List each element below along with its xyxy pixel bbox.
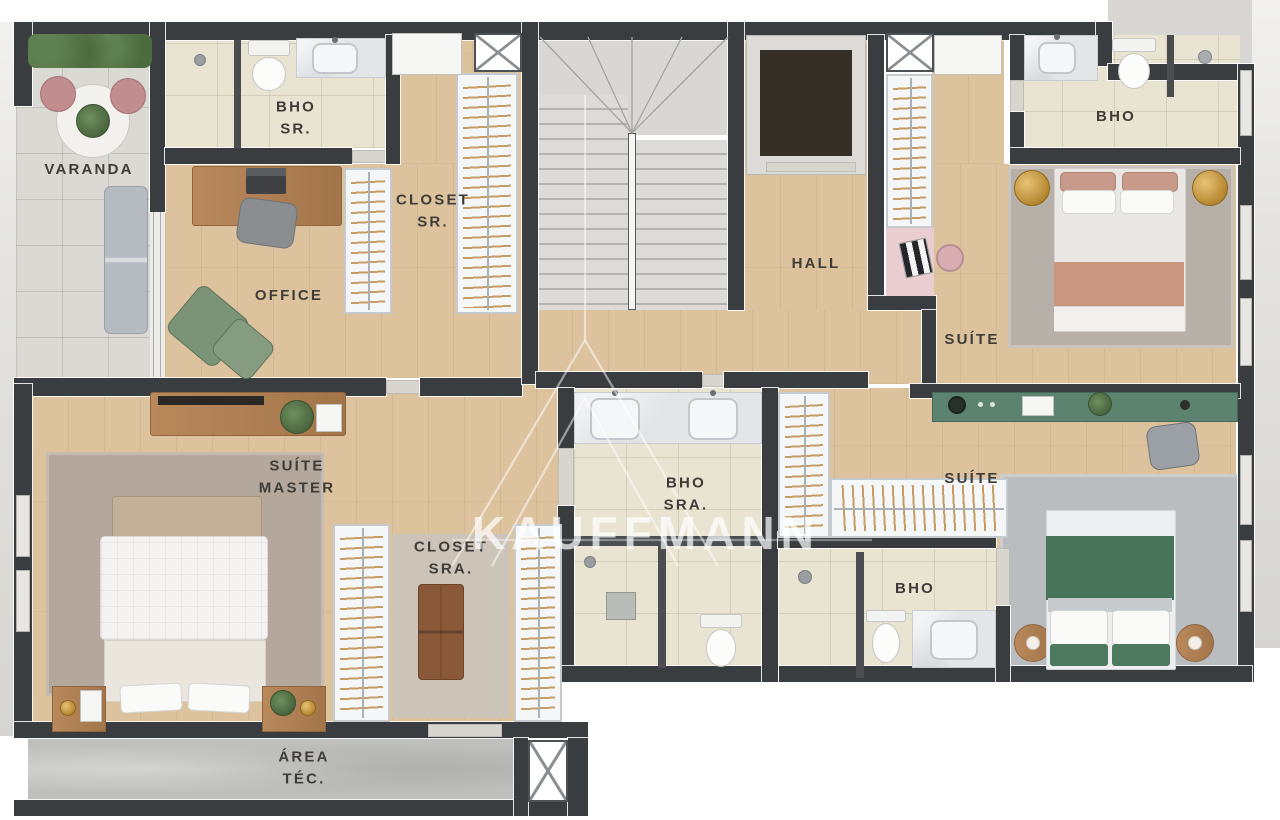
- elevator-shaft-dark: [760, 50, 852, 156]
- shower-head-icon: [584, 556, 596, 568]
- toilet: [248, 40, 290, 56]
- door-bho-sra-top: [702, 374, 724, 387]
- speaker: [80, 690, 102, 722]
- nightstand-plant: [270, 690, 296, 716]
- toilet-bowl: [872, 623, 900, 663]
- pillow: [187, 682, 250, 713]
- varanda-glass-door: [150, 212, 165, 380]
- varanda-chair: [110, 78, 146, 114]
- window: [1240, 455, 1252, 525]
- linen-cabinet: [934, 35, 1002, 75]
- pillow-green-edge: [1112, 644, 1170, 666]
- ventilation-shaft-x-icon: [474, 33, 522, 72]
- wall: [996, 606, 1010, 682]
- closet-rack: [344, 168, 392, 314]
- shower-head-icon: [1198, 50, 1212, 64]
- shower-head-icon: [798, 570, 812, 584]
- pillow: [1112, 610, 1170, 646]
- wall: [868, 296, 936, 310]
- bed-foot: [1054, 306, 1184, 331]
- table-plant: [76, 104, 110, 138]
- toilet-bowl: [252, 57, 286, 91]
- wall: [514, 738, 528, 816]
- bho-bottom-partition: [856, 552, 864, 678]
- stairs-flight-right: [636, 140, 730, 310]
- nightstand-lamp: [1026, 636, 1040, 650]
- bedside-table: [1192, 170, 1228, 206]
- toilet: [1112, 38, 1156, 52]
- window: [16, 495, 30, 557]
- pillow: [1060, 172, 1116, 192]
- lamp: [300, 700, 316, 716]
- sink: [312, 43, 358, 74]
- toilet-bowl: [1118, 53, 1150, 89]
- varanda-chair: [40, 76, 76, 112]
- elevator-door-sill: [766, 162, 856, 172]
- bho-top-partition: [1167, 35, 1174, 97]
- console-knob: [978, 402, 983, 407]
- nightstand-lamp: [1188, 636, 1202, 650]
- sink: [930, 620, 978, 660]
- closet-ottoman: [418, 584, 464, 680]
- faucet: [1054, 34, 1060, 40]
- sink: [688, 398, 738, 440]
- bed-master-duvet: [100, 536, 268, 640]
- office-chair: [235, 196, 299, 250]
- console-tray: [1022, 396, 1054, 416]
- faucet: [332, 37, 338, 43]
- wall: [868, 35, 884, 298]
- wall: [1096, 22, 1112, 66]
- window: [1240, 205, 1252, 280]
- wall: [558, 388, 574, 448]
- closet-rack: [886, 74, 933, 228]
- green-console: [932, 392, 1238, 422]
- bho-sra-partition-v: [658, 546, 666, 668]
- faucet: [612, 390, 618, 396]
- wall: [14, 800, 588, 816]
- wall: [568, 738, 588, 816]
- window: [1240, 298, 1252, 366]
- console-knob: [990, 402, 995, 407]
- closet-cabinet: [392, 33, 462, 75]
- door-bho-bottom: [996, 548, 1010, 606]
- stairs-flight-left: [538, 95, 628, 310]
- varanda-sofa: [104, 186, 148, 334]
- exterior-strip-right: [1252, 0, 1280, 648]
- toilet: [866, 610, 906, 622]
- closet-rack: [830, 478, 1008, 538]
- wall: [150, 22, 165, 212]
- sink: [590, 398, 640, 440]
- ventilation-shaft-x-icon: [886, 33, 934, 72]
- pillow: [1122, 172, 1178, 192]
- wall: [558, 666, 778, 682]
- ventilation-shaft-x-icon: [528, 740, 568, 802]
- wall: [724, 372, 868, 388]
- shower-head-icon: [194, 54, 206, 66]
- pillow: [1120, 190, 1174, 214]
- shelf-plant: [280, 400, 314, 434]
- wall: [1010, 148, 1240, 164]
- bedside-table: [1014, 170, 1050, 206]
- wall: [762, 388, 778, 682]
- wall: [420, 378, 522, 396]
- bho-sra-partition-h: [574, 536, 762, 546]
- closet-rack: [333, 524, 390, 722]
- wall: [522, 22, 538, 384]
- console-plant: [1088, 392, 1112, 416]
- console-basin: [948, 396, 966, 414]
- lamp: [60, 700, 76, 716]
- wall: [922, 310, 936, 392]
- door-bho-top: [1010, 80, 1024, 112]
- door-suite-master: [386, 380, 420, 394]
- toilet-bowl: [706, 629, 736, 667]
- closet-rack: [778, 392, 830, 538]
- closet-rack: [514, 524, 562, 722]
- room-area-tec-floor: [28, 738, 516, 800]
- wall: [165, 148, 352, 164]
- door-bho-sr: [352, 150, 386, 163]
- window: [1240, 70, 1252, 136]
- bed-master-footbench: [112, 496, 262, 540]
- wall: [1010, 35, 1024, 80]
- laptop: [246, 168, 286, 194]
- vanity-chair: [936, 244, 964, 272]
- toilet: [700, 614, 742, 628]
- planter-hedge: [28, 34, 152, 68]
- stairs-handrail: [628, 133, 636, 310]
- closet-rack: [456, 73, 518, 314]
- window: [16, 570, 30, 632]
- desk-lamp: [1180, 400, 1190, 410]
- pillow: [1062, 190, 1116, 214]
- door-area-tec: [428, 724, 502, 737]
- desk-chair: [1145, 421, 1201, 472]
- tv: [158, 396, 264, 405]
- pillow: [1050, 610, 1108, 646]
- sink: [1038, 42, 1076, 74]
- shelf-frame: [316, 404, 342, 432]
- wall: [14, 384, 32, 736]
- pillow: [119, 682, 182, 713]
- faucet: [710, 390, 716, 396]
- pillow-green-edge: [1050, 644, 1108, 666]
- window: [1240, 540, 1252, 612]
- bed-green-blanket: [1046, 536, 1174, 600]
- shower-partition: [234, 40, 241, 148]
- floor-plan: VARANDA BHO SR. CLOSET SR. OFFICE HALL B…: [0, 0, 1280, 820]
- wall: [536, 372, 702, 388]
- wall: [728, 22, 744, 310]
- bed-blanket: [1054, 262, 1184, 306]
- door-bho-sra-side: [558, 448, 574, 506]
- shower-drain: [606, 592, 636, 620]
